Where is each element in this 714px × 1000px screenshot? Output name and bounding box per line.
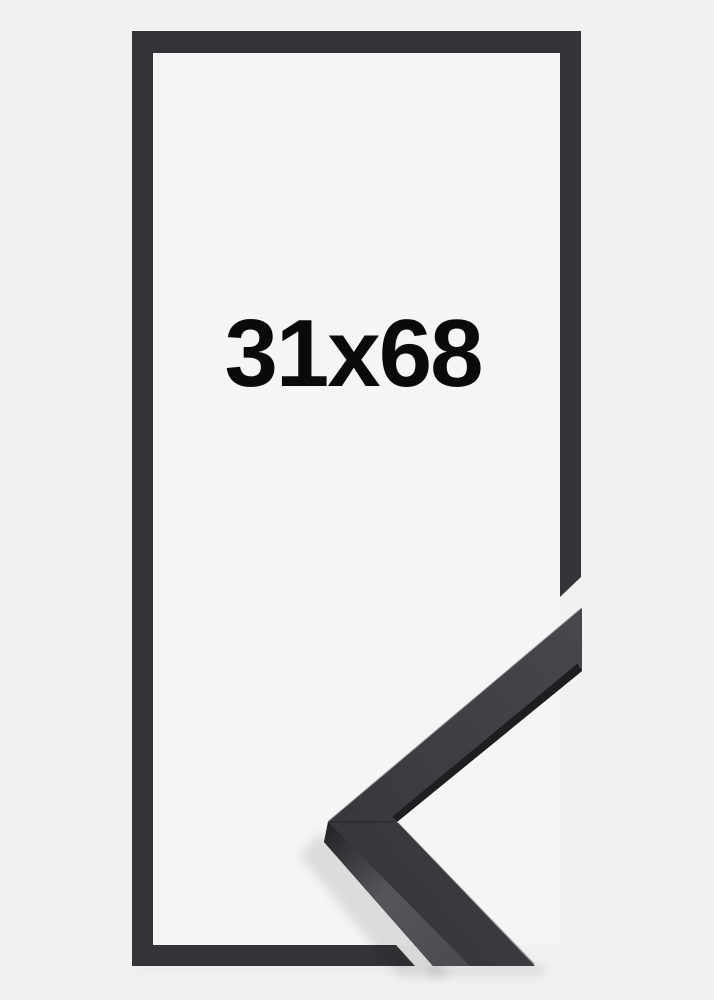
size-label: 31x68 [225, 300, 482, 407]
product-image: 31x68 [0, 0, 714, 1000]
frame-mockup-canvas: 31x68 [0, 0, 714, 1000]
